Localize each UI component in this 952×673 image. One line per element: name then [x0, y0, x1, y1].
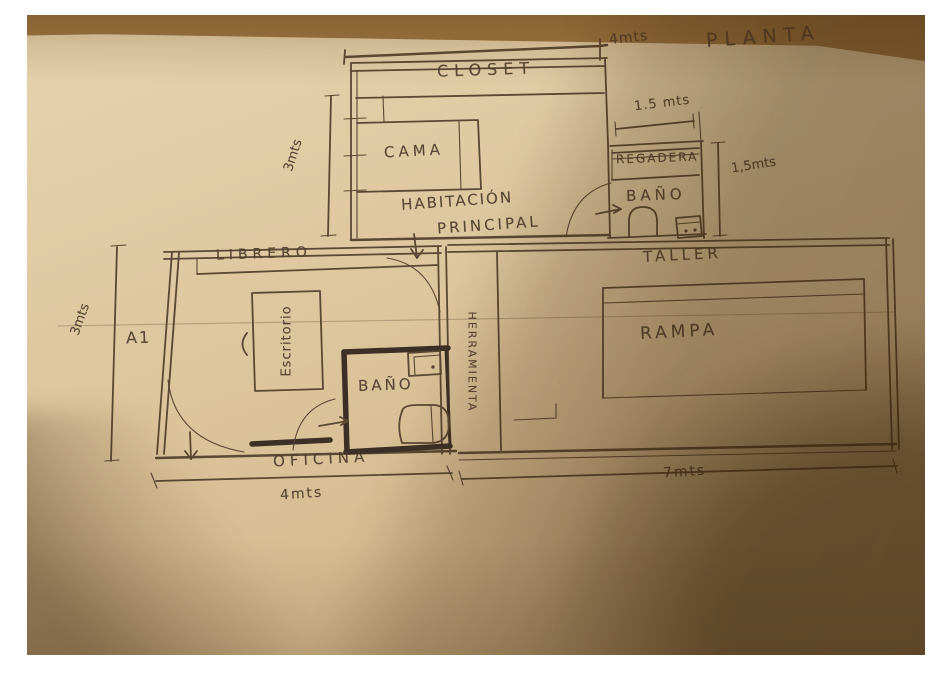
- dim-label-office-width: 4mts: [279, 485, 323, 504]
- room-label-closet: CLOSET: [437, 58, 536, 80]
- dimension-line-bedroom-height: [321, 95, 339, 236]
- sheet-number: A1: [126, 328, 152, 348]
- dimension-line-office-width: [151, 466, 453, 488]
- photo-frame: PLANTA 4mts CLOSET CAMA 3mts HABITACIÓN …: [0, 0, 952, 673]
- dim-label-taller-width: 7mts: [662, 463, 706, 482]
- office-bathroom: [319, 348, 450, 452]
- furniture-label-cama: CAMA: [384, 140, 445, 161]
- room-label-bano-principal: BAÑO: [626, 185, 686, 205]
- floorplan-layer: PLANTA 4mts CLOSET CAMA 3mts HABITACIÓN …: [0, 0, 952, 673]
- furniture-label-librero: LIBRERO: [216, 244, 312, 263]
- dimension-line-office-height: [105, 245, 126, 461]
- master-bathroom: [566, 112, 706, 238]
- furniture-label-escritorio: Escritorio: [280, 305, 295, 376]
- room-label-rampa: RAMPA: [640, 320, 719, 344]
- area-label-herramienta: HERRAMIENTA: [466, 312, 479, 413]
- dimension-line-bath-height: [711, 142, 727, 236]
- dimension-line-shower-width: [615, 114, 694, 136]
- fixture-label-regadera: REGADERA: [616, 150, 699, 167]
- room-label-bano-oficina: BAÑO: [358, 375, 414, 395]
- taller-walls: [448, 238, 899, 460]
